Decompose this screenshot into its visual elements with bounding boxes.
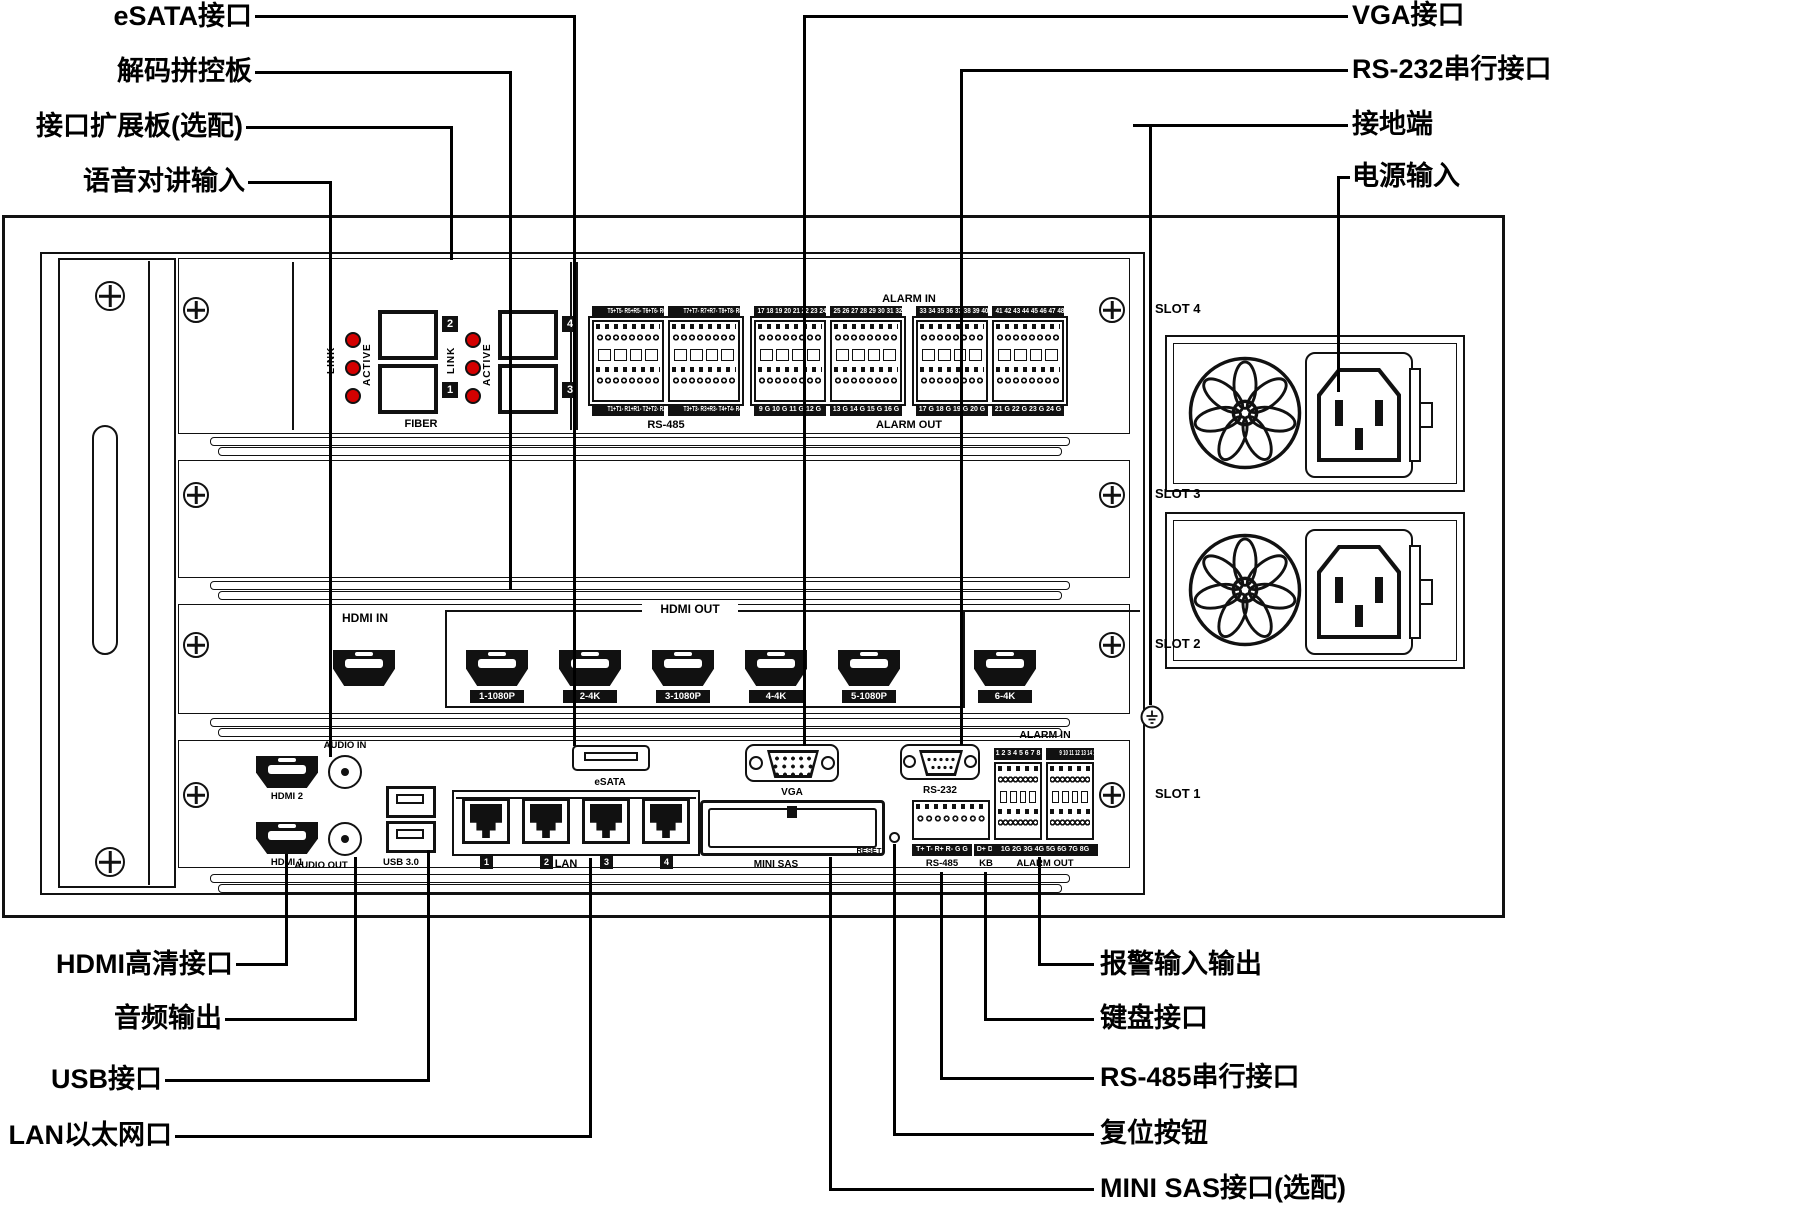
audio-in-label: AUDIO IN [310, 740, 380, 753]
leader-line [255, 71, 512, 74]
terminal-block-bar [998, 349, 1011, 361]
screw-icon [183, 482, 209, 508]
terminal-strip: 25 26 27 28 29 30 31 32 [830, 306, 902, 318]
callout-alarm_io: 报警输入输出 [1100, 950, 1262, 980]
leader-line [329, 181, 332, 757]
rs485-strip: T+ T- R+ R- G G [912, 844, 972, 856]
ground-terminal-icon [1140, 705, 1164, 729]
terminal-block-bars [760, 349, 820, 362]
device-rear-panel-diagram: SLOT 4SLOT 3SLOT 2SLOT 1LINKACTIVE21LINK… [0, 0, 1800, 1211]
lan-port-number: 1 [480, 856, 493, 869]
board-edge-line [292, 262, 294, 430]
callout-audio_out: 音频输出 [114, 1004, 222, 1034]
terminal-strip: 17 G 18 G 19 G 20 G [916, 404, 988, 416]
leader-line [225, 1018, 357, 1021]
terminal-block-pins2 [596, 374, 660, 387]
leader-line [427, 850, 430, 1081]
hdmi-out-port-slot [571, 659, 609, 668]
terminal-block-pins2 [758, 374, 822, 387]
reset-label: RESET [850, 846, 888, 856]
terminal-block-bar [1030, 349, 1043, 361]
fiber-module [498, 310, 558, 360]
mini-sas-label: MINI SAS [730, 858, 822, 872]
terminal-block-bar [938, 349, 951, 361]
hdmi2-port-notch [278, 758, 295, 762]
hdmi-out-port-notch [767, 652, 784, 656]
hdmi-in-label: HDMI IN [328, 611, 402, 627]
alarm-terminal-block-bar [1072, 791, 1079, 803]
leader-line [165, 1079, 430, 1082]
callout-reset_button: 复位按钮 [1100, 1119, 1208, 1149]
alarm-in-header: ALARM IN [992, 729, 1098, 743]
alarm-terminal-block-bar [1081, 791, 1088, 803]
fiber-module-number: 2 [442, 316, 458, 332]
hdmi-in-port-notch [355, 652, 372, 656]
leader-line [829, 857, 832, 1189]
leader-line [285, 854, 288, 966]
alarm-terminal-block-pins2 [998, 816, 1038, 829]
hdmi2-port-slot [268, 765, 306, 774]
alarm-terminal-block-bar [1029, 791, 1036, 803]
alarm-terminal-block-bars [1052, 791, 1088, 804]
fiber-module-number: 1 [442, 382, 458, 398]
ac-inlet-pin [1335, 400, 1343, 426]
terminal-block-teeth [672, 324, 736, 329]
terminal-block-bar [645, 349, 658, 361]
leader-line [175, 1135, 592, 1138]
terminal-strip: 9 G 10 G 11 G 12 G [754, 404, 826, 416]
terminal-block-bar [807, 349, 820, 361]
leader-line [1340, 176, 1350, 179]
ac-inlet-clip-tab [1419, 402, 1433, 428]
rs485-port-label: RS-485 [912, 858, 972, 871]
terminal-block-pins2 [996, 374, 1060, 387]
callout-keyboard_port: 键盘接口 [1100, 1004, 1208, 1034]
hdmi-out-port-label: 6-4K [978, 690, 1032, 703]
screw-icon [1099, 297, 1125, 323]
terminal-block-bar [706, 349, 719, 361]
fan-icon [1187, 355, 1303, 471]
board-divider [570, 262, 572, 430]
screw-icon [1099, 482, 1125, 508]
callout-mini_sas: MINI SAS接口(选配) [1100, 1174, 1346, 1204]
leader-line [984, 872, 987, 1020]
audio-in-jack-hole [341, 768, 349, 776]
terminal-block-pins [672, 331, 736, 344]
fiber-module [498, 364, 558, 414]
terminal-block-teeth2 [758, 367, 822, 372]
rs232-ear [964, 755, 977, 768]
card-rail [218, 728, 1062, 737]
bracket-handle [92, 425, 118, 655]
hdmi-out-port-notch [996, 652, 1013, 656]
terminal-block-pins2 [672, 374, 736, 387]
terminal-block-bar [969, 349, 982, 361]
vga-pin-row [773, 755, 813, 762]
terminal-block-pins [596, 331, 660, 344]
screw-icon [183, 297, 209, 323]
terminal-block-bars [836, 349, 896, 362]
leader-line [1133, 124, 1348, 127]
callout-vga_port: VGA接口 [1352, 1, 1465, 31]
rs232-ear [903, 755, 916, 768]
leader-line [248, 181, 332, 184]
ac-inlet-clip-tab [1419, 579, 1433, 605]
leader-line [963, 69, 1348, 72]
hdmi-out-port-label: 4-4K [749, 690, 803, 703]
callout-power_input: 电源输入 [1352, 162, 1460, 192]
terminal-block-bar [776, 349, 789, 361]
slot-label-3: SLOT 3 [1155, 486, 1227, 504]
board-divider [576, 262, 578, 430]
hdmi-out-port-slot [850, 659, 888, 668]
hdmi-out-port-notch [860, 652, 877, 656]
terminal-strip: 17 18 19 20 21 22 23 24 [754, 306, 826, 318]
esata-label: eSATA [580, 776, 640, 790]
leader-line [940, 1077, 1094, 1080]
alarm-terminal-block-teeth2 [998, 809, 1038, 814]
terminal-block-teeth [834, 324, 898, 329]
alarm-terminal-block-pins2 [1050, 816, 1090, 829]
terminal-block-teeth2 [596, 367, 660, 372]
esata-port-slot [584, 752, 638, 761]
alarm-terminal-block-teeth2 [1050, 809, 1090, 814]
callout-rs485_port: RS-485串行接口 [1100, 1063, 1300, 1093]
ac-inlet-pin [1355, 605, 1363, 627]
terminal-block-bar [836, 349, 849, 361]
terminal-block-bar [614, 349, 627, 361]
terminal-block-teeth2 [920, 367, 984, 372]
terminal-block-bar [674, 349, 687, 361]
callout-audio_talk_in: 语音对讲输入 [83, 167, 245, 197]
hdmi-out-port-notch [674, 652, 691, 656]
ac-inlet-pin [1375, 577, 1383, 603]
alarm-terminal-block-teeth [1050, 766, 1090, 771]
terminal-strip: T1+T1- R1+R1- T2+T2- R2+R2- [592, 404, 664, 416]
fiber-module [378, 310, 438, 360]
leader-line [1038, 963, 1094, 966]
terminal-strip: 33 34 35 36 37 38 39 40 [916, 306, 988, 318]
hdmi-out-port-label: 1-1080P [470, 690, 524, 703]
hdmi-out-port-slot [664, 659, 702, 668]
status-led-icon [345, 360, 361, 376]
alarm-terminal-block-bar [1062, 791, 1069, 803]
callout-expansion_board: 接口扩展板(选配) [36, 112, 243, 142]
terminal-block-bar [760, 349, 773, 361]
lan-port-number: 3 [600, 856, 613, 869]
terminal-block-teeth2 [996, 367, 1060, 372]
hdmi-out-port-notch [488, 652, 505, 656]
audio-out-jack-hole [341, 835, 349, 843]
alarm-terminal-block-teeth [998, 766, 1038, 771]
leader-line [940, 872, 943, 1079]
ac-inlet-pin [1375, 400, 1383, 426]
card-rail [210, 581, 1070, 590]
ac-inlet-pin [1335, 577, 1343, 603]
terminal-block-bar [868, 349, 881, 361]
alarm-terminal-block-bar [1010, 791, 1017, 803]
terminal-block-bar [630, 349, 643, 361]
slot-label-1: SLOT 1 [1155, 786, 1227, 804]
leader-line [1149, 124, 1152, 705]
callout-lan_port: LAN以太网口 [9, 1121, 173, 1151]
leader-line [236, 963, 288, 966]
reset-hole [889, 832, 900, 843]
card-rail [210, 718, 1070, 727]
alarm-out-label: ALARM OUT [992, 858, 1098, 871]
fiber-label: FIBER [386, 417, 456, 432]
alarm-terminal-block-bar [1052, 791, 1059, 803]
callout-ground_terminal: 接地端 [1352, 110, 1433, 140]
alarm-in-strip: 1 2 3 4 5 6 7 8 [994, 748, 1042, 760]
terminal-block-pins [920, 331, 984, 344]
hdmi-out-port-slot [757, 659, 795, 668]
hdmi-in-port-slot [345, 659, 383, 668]
leader-line [1038, 857, 1041, 966]
vga-pin-row [773, 771, 813, 778]
slot-row-3 [178, 460, 1130, 578]
terminal-block-teeth [758, 324, 822, 329]
hdmi-out-port-slot [478, 659, 516, 668]
terminal-block-bars [998, 349, 1058, 362]
callout-esata_port: eSATA接口 [113, 2, 252, 32]
terminal-block-bar [883, 349, 896, 361]
alarm-in-strip: 9 10 11 12 13 14 15 16 [1046, 748, 1094, 760]
terminal-strip: T7+T7- R7+R7- T8+T8- R8+R8- [668, 306, 740, 318]
screw-icon [95, 847, 125, 877]
slot-label-2: SLOT 2 [1155, 636, 1227, 654]
terminal-block-pins2 [834, 374, 898, 387]
leader-line [806, 15, 1348, 18]
card-rail [218, 447, 1062, 456]
usb-label: USB 3.0 [378, 857, 424, 870]
hdmi-out-box-extension [965, 610, 1140, 612]
status-led-icon [345, 388, 361, 404]
leader-line [984, 1018, 1094, 1021]
ac-inlet-pin [1355, 428, 1363, 450]
slot-label-4: SLOT 4 [1155, 301, 1227, 319]
alarm-out-strip: 1G 2G 3G 4G 5G 6G 7G 8G [992, 844, 1098, 856]
callout-usb_port: USB接口 [51, 1065, 162, 1095]
mini-sas-key [787, 806, 797, 818]
leader-line [1337, 176, 1340, 392]
terminal-block-bar [598, 349, 611, 361]
terminal-strip: 21 G 22 G 23 G 24 G [992, 404, 1064, 416]
usb-port-tongue [396, 829, 424, 839]
hdmi-out-header: HDMI OUT [642, 602, 738, 618]
rs232-label: RS-232 [910, 784, 970, 798]
leader-line [573, 15, 576, 746]
hdmi-out-port-label: 2-4K [563, 690, 617, 703]
terminal-block-bar [922, 349, 935, 361]
terminal-block-pins [996, 331, 1060, 344]
status-led-icon [465, 360, 481, 376]
vga-ear [821, 756, 835, 770]
terminal-block-bars [598, 349, 658, 362]
terminal-block-teeth [596, 324, 660, 329]
callout-rs232_port: RS-232串行接口 [1352, 55, 1552, 85]
terminal-strip: T5+T5- R5+R5- T6+T6- R6+R6- [592, 306, 664, 318]
leader-line [509, 71, 512, 590]
status-led-icon [465, 388, 481, 404]
terminal-block-bars [674, 349, 734, 362]
leader-line [893, 1133, 1094, 1136]
terminal-strip: T3+T3- R3+R3- T4+T4- R4+R4- [668, 404, 740, 416]
screw-icon [183, 782, 209, 808]
alarm-terminal-block-pins [1050, 773, 1090, 786]
hdmi-out-port-label: 3-1080P [656, 690, 710, 703]
status-led-icon [345, 332, 361, 348]
lan-label: LAN [548, 857, 584, 872]
rs232-pin-row [930, 764, 954, 771]
rs485-label: RS-485 [626, 418, 706, 433]
lan-port-number: 4 [660, 856, 673, 869]
alarm-in-header: ALARM IN [849, 292, 969, 307]
fiber-module [378, 364, 438, 414]
card-rail [218, 591, 1062, 600]
screw-icon [95, 281, 125, 311]
leader-line [354, 857, 357, 1020]
alarm-terminal-block-bar [1020, 791, 1027, 803]
terminal-block-pins2 [920, 374, 984, 387]
vga-pin-row [771, 763, 815, 770]
bracket-fold-line [148, 261, 150, 885]
hdmi-out-port-label: 5-1080P [842, 690, 896, 703]
usb-port-tongue [396, 794, 424, 804]
terminal-strip: 41 42 43 44 45 46 47 48 [992, 306, 1064, 318]
terminal-block-teeth [996, 324, 1060, 329]
leader-line [589, 858, 592, 1137]
screw-icon [183, 632, 209, 658]
terminal-block-bar [1045, 349, 1058, 361]
terminal-block-bars [922, 349, 982, 362]
leader-line [829, 1188, 1094, 1191]
alarm-terminal-block-bar [1000, 791, 1007, 803]
rs232-pin-row [926, 756, 956, 763]
rs485-kb-teeth [916, 804, 986, 809]
terminal-block-teeth [920, 324, 984, 329]
terminal-block-pins [758, 331, 822, 344]
screw-icon [1099, 632, 1125, 658]
hdmi2-label: HDMI 2 [259, 791, 315, 804]
card-rail [218, 884, 1062, 893]
vga-ear [749, 756, 763, 770]
card-rail [210, 437, 1070, 446]
terminal-block-bar [721, 349, 734, 361]
status-led-icon [465, 332, 481, 348]
terminal-strip: 13 G 14 G 15 G 16 G [830, 404, 902, 416]
fan-icon [1187, 532, 1303, 648]
leader-line [803, 15, 806, 746]
rs485-kb-pins [916, 812, 986, 825]
terminal-block-bar [852, 349, 865, 361]
callout-decode_board: 解码拼控板 [117, 57, 252, 87]
terminal-block-bar [1014, 349, 1027, 361]
leader-line [960, 69, 963, 745]
alarm-terminal-block-bars [1000, 791, 1036, 804]
alarm-out-label: ALARM OUT [849, 418, 969, 433]
terminal-block-bar [690, 349, 703, 361]
leader-line [246, 126, 453, 129]
hdmi-out-port-notch [581, 652, 598, 656]
alarm-terminal-block-pins [998, 773, 1038, 786]
vga-label: VGA [770, 786, 814, 800]
leader-line [893, 844, 896, 1135]
fiber1-active-label: ACTIVE [363, 322, 377, 386]
hdmi1-port-slot [268, 831, 306, 840]
terminal-block-teeth2 [834, 367, 898, 372]
leader-line [255, 15, 575, 18]
screw-icon [1099, 782, 1125, 808]
callout-hdmi_hd_port: HDMI高清接口 [56, 950, 233, 980]
leader-line [450, 126, 453, 260]
hdmi-out-port-slot [986, 659, 1024, 668]
fiber2-active-label: ACTIVE [483, 322, 497, 386]
hdmi1-port-notch [278, 824, 295, 828]
terminal-block-teeth2 [672, 367, 736, 372]
terminal-block-pins [834, 331, 898, 344]
